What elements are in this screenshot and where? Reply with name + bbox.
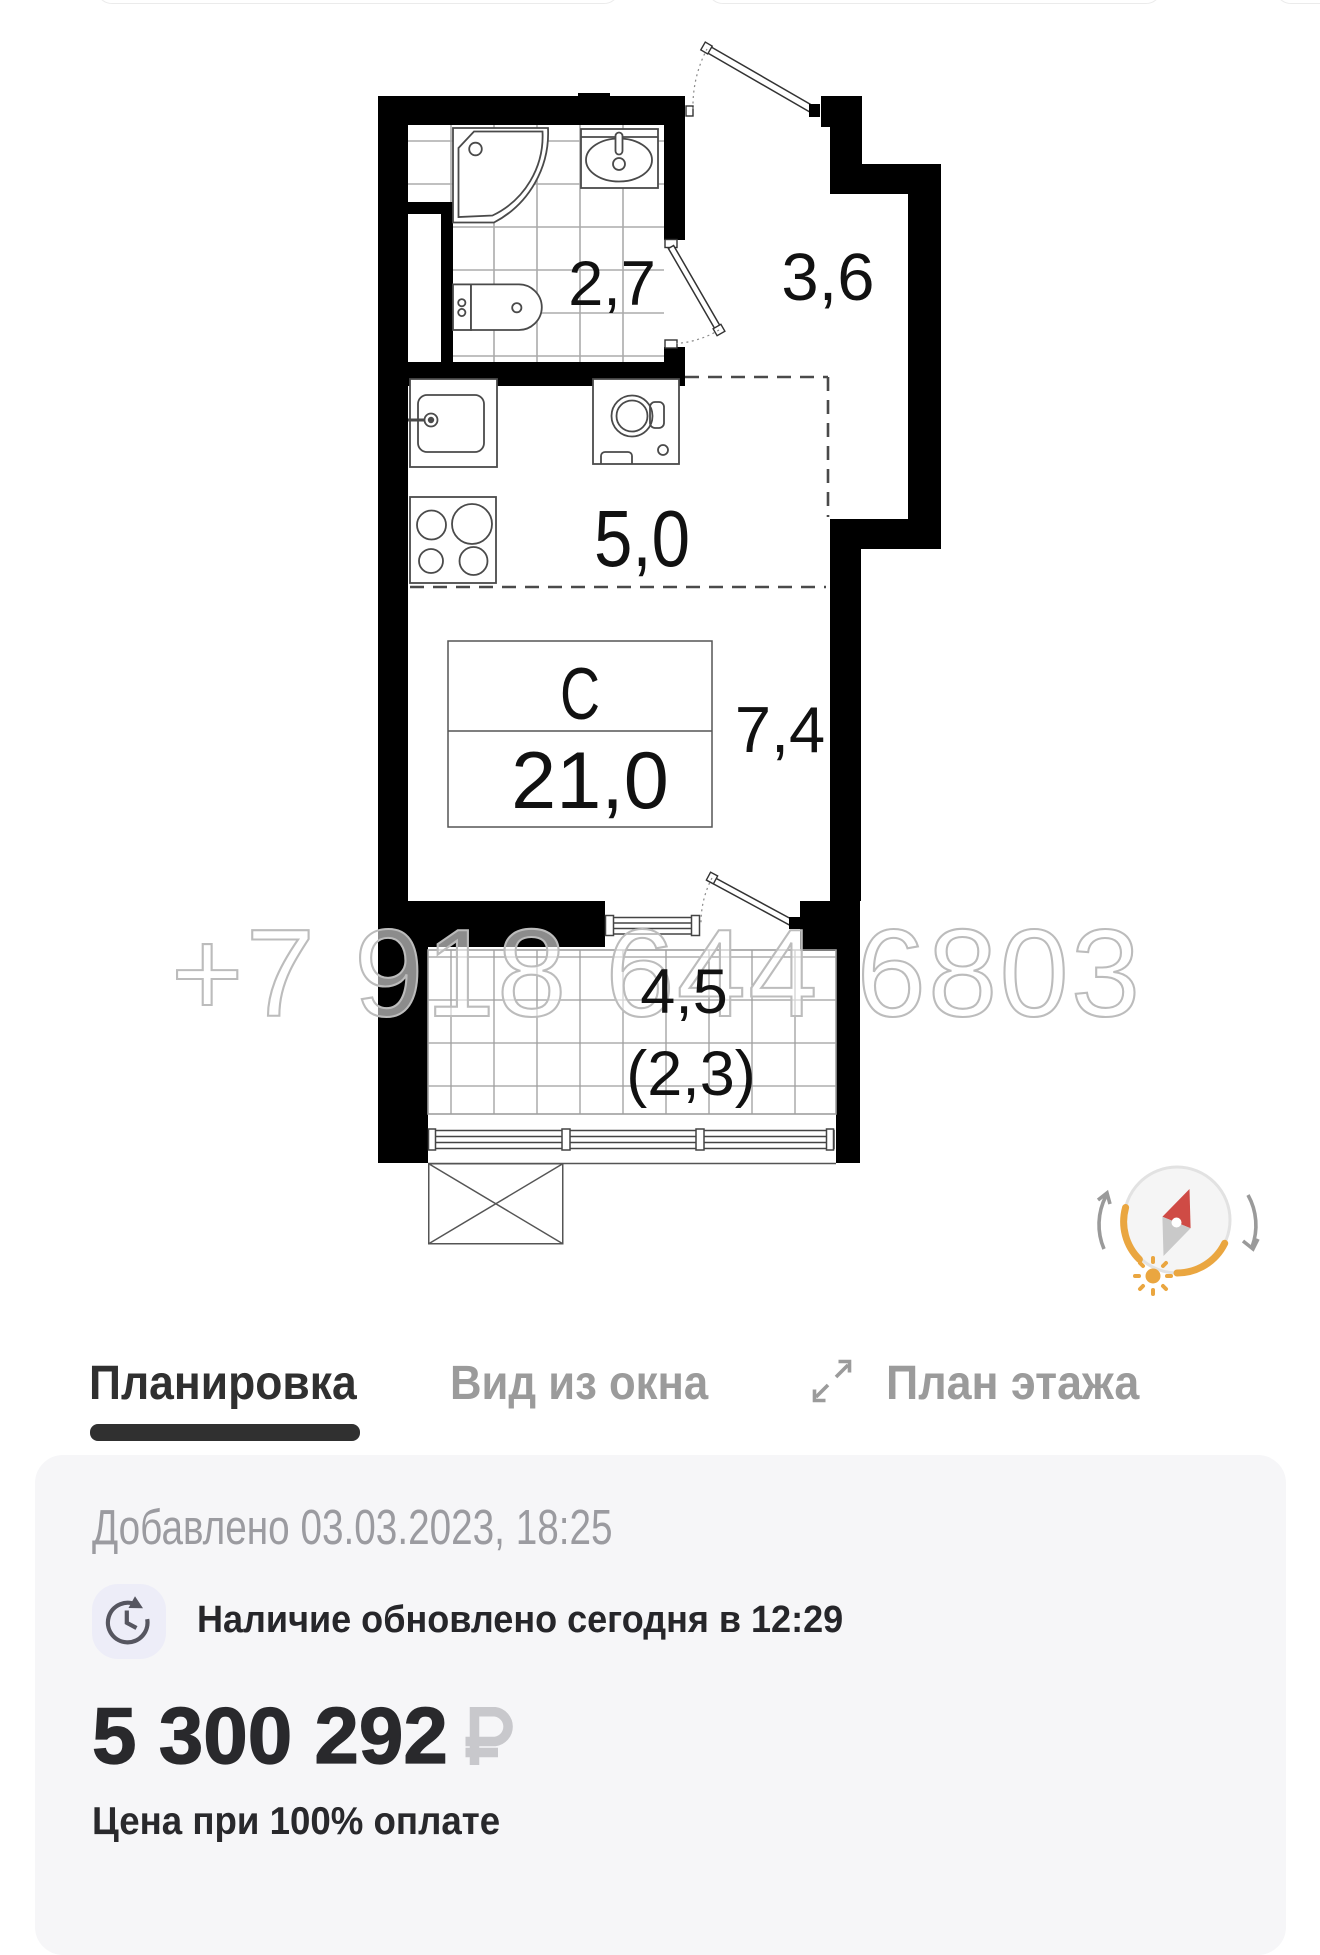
svg-text:4,5: 4,5 [640, 957, 728, 1027]
svg-text:2,7: 2,7 [568, 249, 656, 319]
svg-text:5,0: 5,0 [594, 494, 690, 583]
svg-text:3,6: 3,6 [781, 240, 874, 315]
svg-text:7,4: 7,4 [735, 693, 825, 766]
svg-text:(2,3): (2,3) [626, 1039, 756, 1109]
svg-text:C: C [560, 654, 600, 735]
svg-text:21,0: 21,0 [511, 736, 669, 826]
